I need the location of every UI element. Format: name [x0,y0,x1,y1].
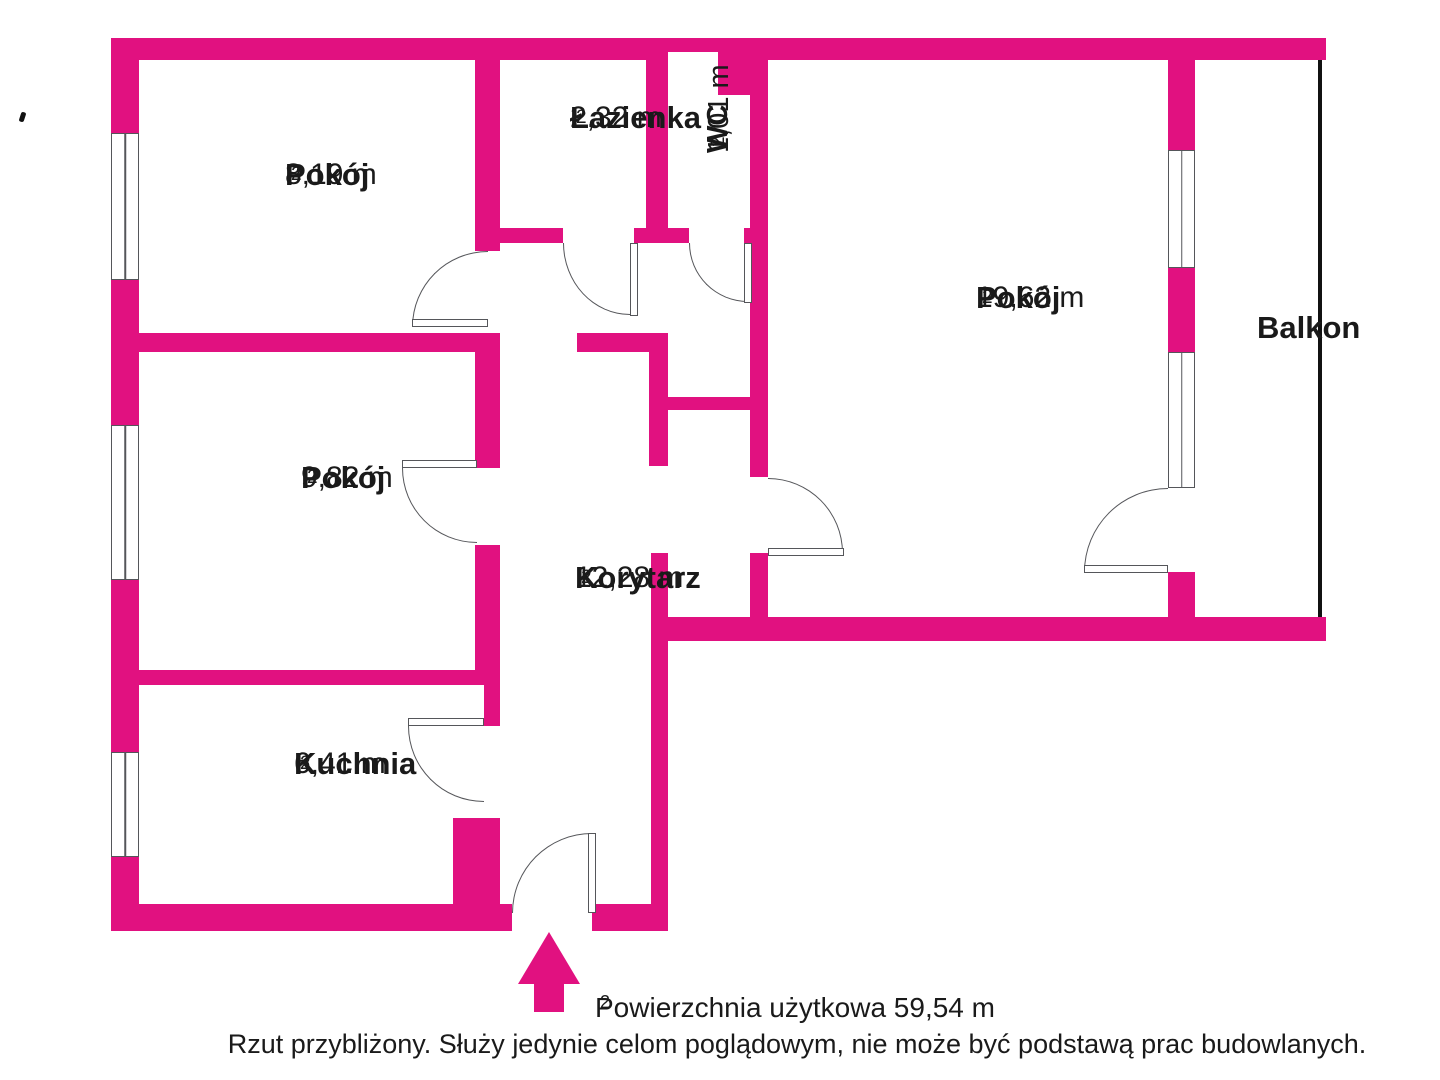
door-leaf-room2 [402,460,477,468]
door-arc-bathroom [563,243,630,315]
wall-top [111,38,1326,60]
wall-room2-right-upper [475,352,500,468]
floor-plan: Pokój 8,19 m2 Łazienka 2,32 m2 WC 1,01 m… [0,0,1440,1080]
wall-rooms-divider [111,333,500,352]
wall-bigroom-bottom [651,617,1326,641]
window-balcony-1 [1168,150,1195,268]
stray-mark [19,111,27,122]
door-arc-balcony [1084,488,1168,572]
window-balcony-2 [1168,352,1195,488]
wall-bottom-left [111,904,512,931]
door-leaf-wc [744,243,752,303]
door-leaf-kitchen [408,718,484,726]
wall-corridor-L-vertical [649,352,668,466]
wall-kitchen-block [453,818,500,904]
door-arc-kitchen [408,726,484,802]
door-arc-wc [689,243,748,302]
door-arc-room2 [402,468,477,543]
wall-room2-right-lower [475,545,500,685]
wall-balcony-seg2 [1168,268,1195,352]
door-leaf-balcony [1084,565,1168,573]
wall-balcony-seg3 [1168,572,1195,617]
wall-bigroom-left-lower [750,553,768,617]
room-name: Balkon [1257,308,1360,348]
window-room2 [111,425,139,580]
door-leaf-bigroom [768,548,844,556]
door-arc-room1 [412,251,488,327]
wall-corridor-L-horizontal [577,333,668,352]
wall-wc-right [750,60,768,477]
wall-notch-above-wc [668,52,718,60]
disclaimer-text: Rzut przybliżony. Służy jedynie celom po… [228,1029,1367,1060]
window-kitchen [111,752,139,857]
wall-kitchen-right [484,685,500,726]
wall-nook-bottom [668,397,750,410]
entrance-arrow-icon [518,932,580,984]
wall-room1-right [475,38,500,251]
wall-corridor-right [651,553,668,931]
door-leaf-room1 [412,319,488,327]
wall-kitchen-divider [111,670,500,685]
wall-bath-bottom-left [497,228,563,243]
door-leaf-entrance [588,833,596,913]
wall-balcony-seg1 [1168,60,1195,150]
door-arc-bigroom [768,478,843,553]
window-room1 [111,133,139,280]
wall-bath-bottom-mid [634,228,689,243]
entrance-arrow-stem [534,984,564,1012]
door-leaf-bathroom [630,243,638,316]
door-arc-entrance [512,833,592,913]
